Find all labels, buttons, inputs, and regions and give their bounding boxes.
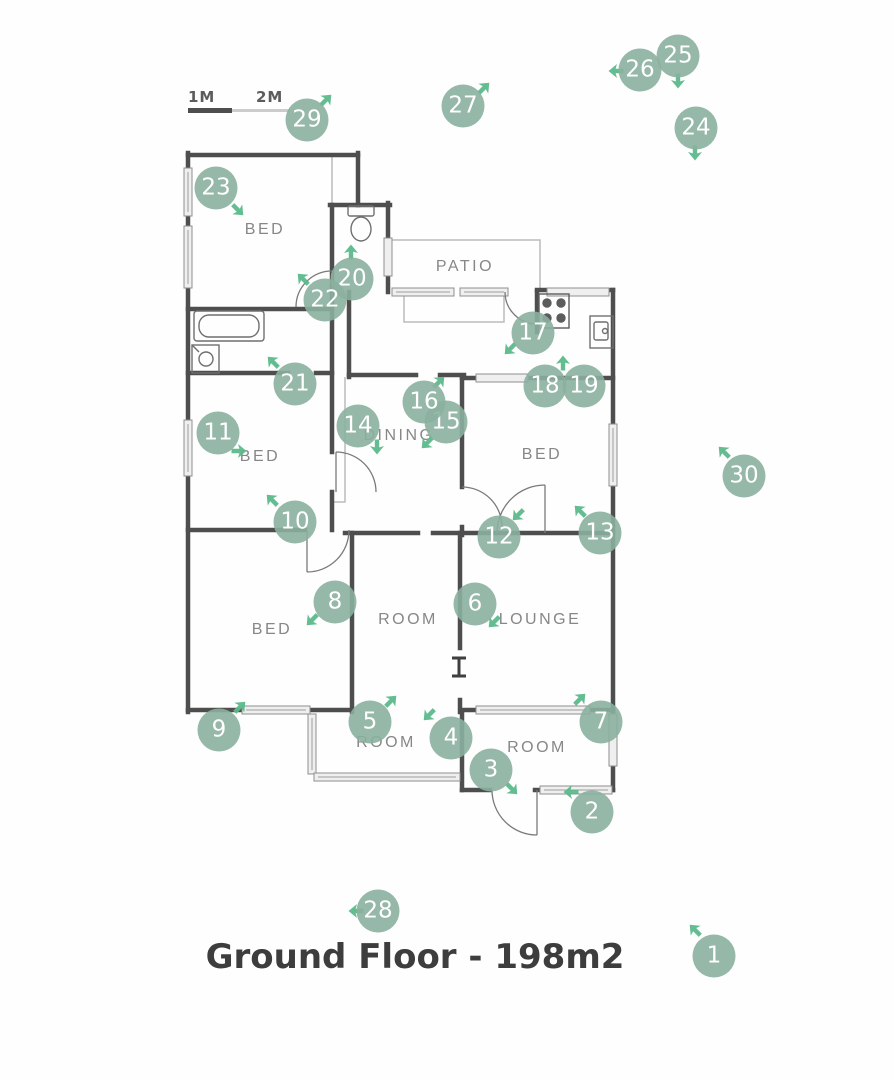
photo-marker[interactable]: 16 bbox=[403, 381, 446, 424]
photo-marker[interactable]: 8 bbox=[314, 581, 357, 624]
photo-marker[interactable]: 30 bbox=[723, 455, 766, 498]
scale-segment-light bbox=[232, 109, 290, 112]
photo-marker[interactable]: 29 bbox=[286, 99, 329, 142]
photo-marker[interactable]: 24 bbox=[675, 107, 718, 150]
room-label: PATIO bbox=[436, 258, 494, 276]
room-label: BED bbox=[252, 621, 292, 639]
bathroom-sink-icon bbox=[192, 345, 219, 373]
room-label: ROOM bbox=[507, 739, 567, 757]
photo-marker[interactable]: 9 bbox=[198, 709, 241, 752]
scale-label-2m: 2M bbox=[256, 88, 283, 106]
scale-segment-dark bbox=[188, 108, 232, 113]
scale-bar: 1M 2M bbox=[188, 88, 298, 118]
photo-marker[interactable]: 11 bbox=[197, 412, 240, 455]
room-label: BED bbox=[522, 446, 562, 464]
toilet-icon bbox=[348, 206, 374, 241]
photo-marker[interactable]: 26 bbox=[619, 49, 662, 92]
room-label: BED bbox=[245, 221, 285, 239]
room-label: ROOM bbox=[378, 611, 438, 629]
floor-plan bbox=[0, 0, 894, 1080]
room-label: LOUNGE bbox=[499, 611, 582, 629]
photo-marker[interactable]: 19 bbox=[563, 365, 606, 408]
photo-marker[interactable]: 17 bbox=[512, 312, 555, 355]
scale-label-1m: 1M bbox=[188, 88, 215, 106]
bathtub-icon bbox=[194, 311, 264, 341]
photo-marker[interactable]: 23 bbox=[195, 167, 238, 210]
photo-marker[interactable]: 10 bbox=[274, 501, 317, 544]
photo-marker[interactable]: 13 bbox=[579, 512, 622, 555]
chimney-symbol bbox=[452, 658, 466, 676]
photo-marker[interactable]: 22 bbox=[304, 279, 347, 322]
photo-marker[interactable]: 18 bbox=[524, 365, 567, 408]
photo-marker[interactable]: 5 bbox=[349, 701, 392, 744]
photo-marker[interactable]: 7 bbox=[580, 701, 623, 744]
photo-marker[interactable]: 25 bbox=[657, 35, 700, 78]
photo-marker[interactable]: 4 bbox=[430, 717, 473, 760]
photo-marker[interactable]: 12 bbox=[478, 516, 521, 559]
photo-marker[interactable]: 14 bbox=[337, 405, 380, 448]
page-title: Ground Floor - 198m2 bbox=[206, 937, 625, 977]
walls bbox=[188, 153, 613, 790]
kitchen-sink-icon bbox=[590, 316, 613, 348]
photo-marker[interactable]: 21 bbox=[274, 363, 317, 406]
photo-marker[interactable]: 1 bbox=[693, 935, 736, 978]
photo-marker[interactable]: 3 bbox=[470, 749, 513, 792]
photo-marker[interactable]: 28 bbox=[357, 890, 400, 933]
photo-marker[interactable]: 27 bbox=[442, 85, 485, 128]
photo-marker[interactable]: 2 bbox=[571, 791, 614, 834]
photo-marker[interactable]: 6 bbox=[454, 583, 497, 626]
